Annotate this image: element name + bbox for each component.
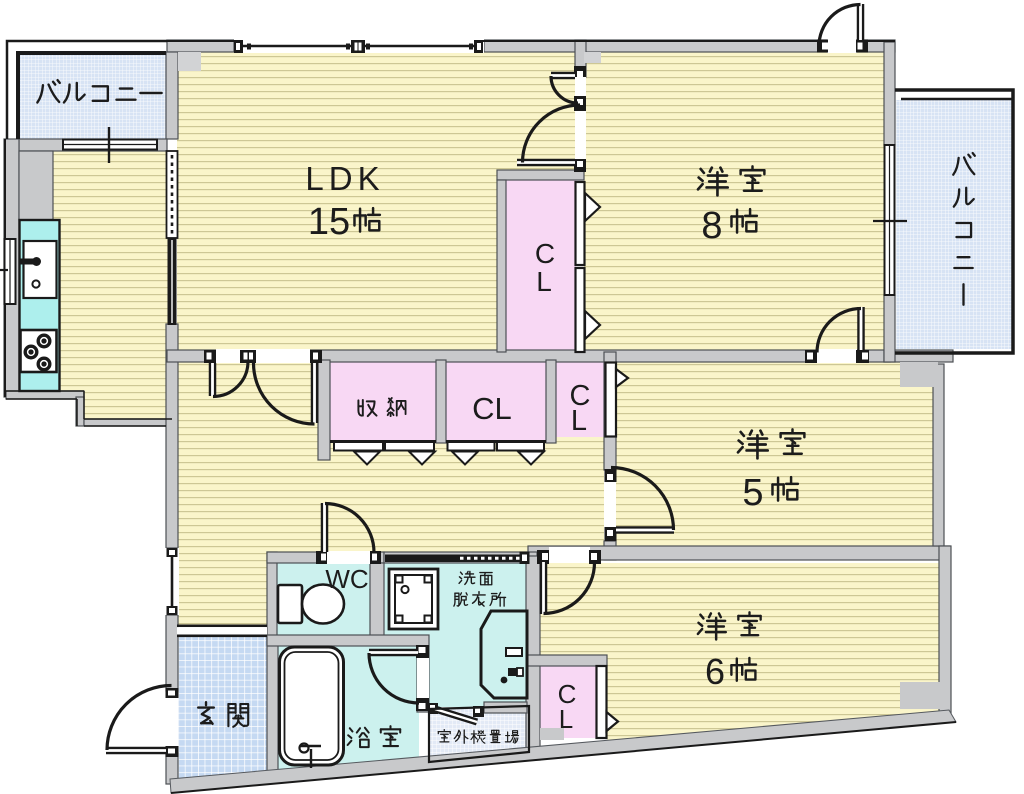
svg-text:5: 5 — [742, 472, 763, 514]
svg-text:C: C — [535, 238, 555, 269]
svg-text:8: 8 — [701, 205, 722, 247]
svg-text:L: L — [571, 405, 587, 437]
svg-text:L: L — [559, 704, 573, 734]
svg-text:LDK: LDK — [305, 160, 384, 197]
svg-text:15: 15 — [308, 201, 350, 243]
svg-text:L: L — [536, 266, 552, 297]
svg-text:CL: CL — [472, 391, 512, 426]
svg-text:6: 6 — [705, 651, 725, 692]
svg-text:WC: WC — [325, 564, 368, 594]
